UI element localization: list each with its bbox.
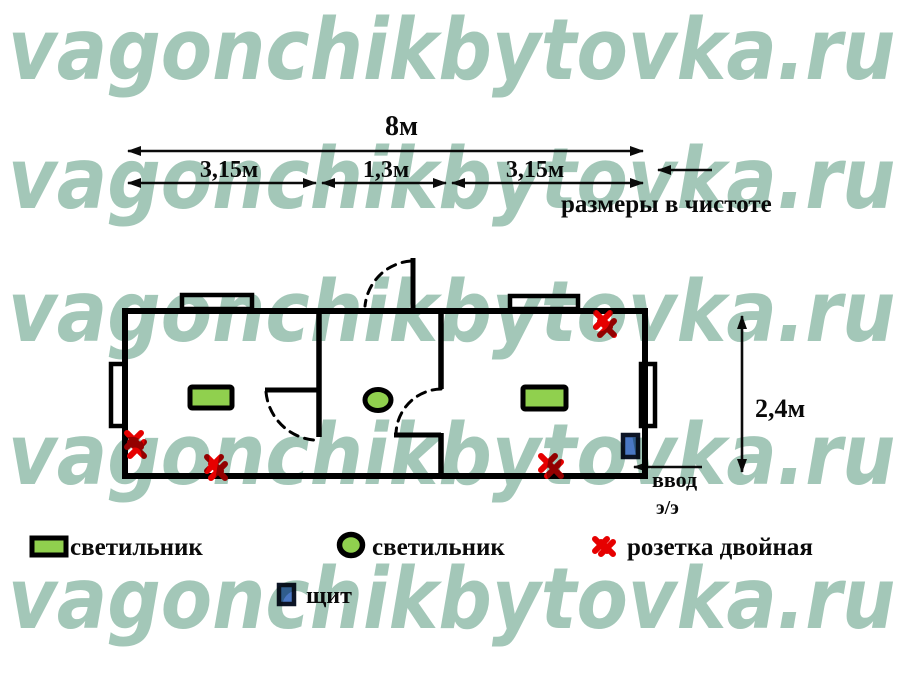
light-rect-right-icon bbox=[523, 387, 566, 409]
light-round-middle-icon bbox=[365, 390, 391, 411]
dimension-right-label: 3,15м bbox=[485, 158, 585, 183]
panel-icon bbox=[623, 435, 638, 457]
legend-panel-label: щит bbox=[306, 584, 352, 609]
legend-socket-label: розетка двойная bbox=[627, 535, 813, 561]
legend-light-rect-icon bbox=[32, 538, 66, 555]
dimension-left-label: 3,15м bbox=[179, 158, 279, 183]
left-door-arc-icon bbox=[266, 392, 314, 440]
dimension-note-label: размеры в чистоте bbox=[561, 192, 772, 218]
window-top-right-icon bbox=[510, 296, 578, 309]
legend-light-rect-label: светильник bbox=[70, 535, 203, 561]
walls bbox=[125, 258, 645, 476]
dimension-height-label: 2,4м bbox=[755, 395, 805, 422]
light-icons bbox=[190, 387, 566, 411]
right-door-arc-icon bbox=[396, 389, 441, 434]
dimension-total-label: 8м bbox=[385, 112, 418, 141]
window-top-left-icon bbox=[182, 295, 252, 309]
legend-panel-icon bbox=[279, 585, 294, 604]
dimension-middle-label: 1,3м bbox=[336, 158, 436, 183]
legend-light-round-icon bbox=[340, 535, 363, 556]
power-entry-sublabel: э/э bbox=[656, 498, 679, 519]
floor-plan-page: 8м 3,15м 1,3м 3,15м размеры в чистоте 2,… bbox=[0, 0, 900, 675]
power-entry-label: ввод bbox=[652, 468, 697, 491]
floor-plan-drawing bbox=[0, 0, 900, 675]
socket-icon bbox=[596, 313, 614, 335]
light-rect-left-icon bbox=[190, 387, 232, 408]
entry-door-arc-icon bbox=[365, 261, 411, 306]
legend-light-round-label: светильник bbox=[372, 535, 505, 561]
legend-socket-icon bbox=[595, 539, 613, 554]
socket-icon bbox=[127, 433, 144, 456]
